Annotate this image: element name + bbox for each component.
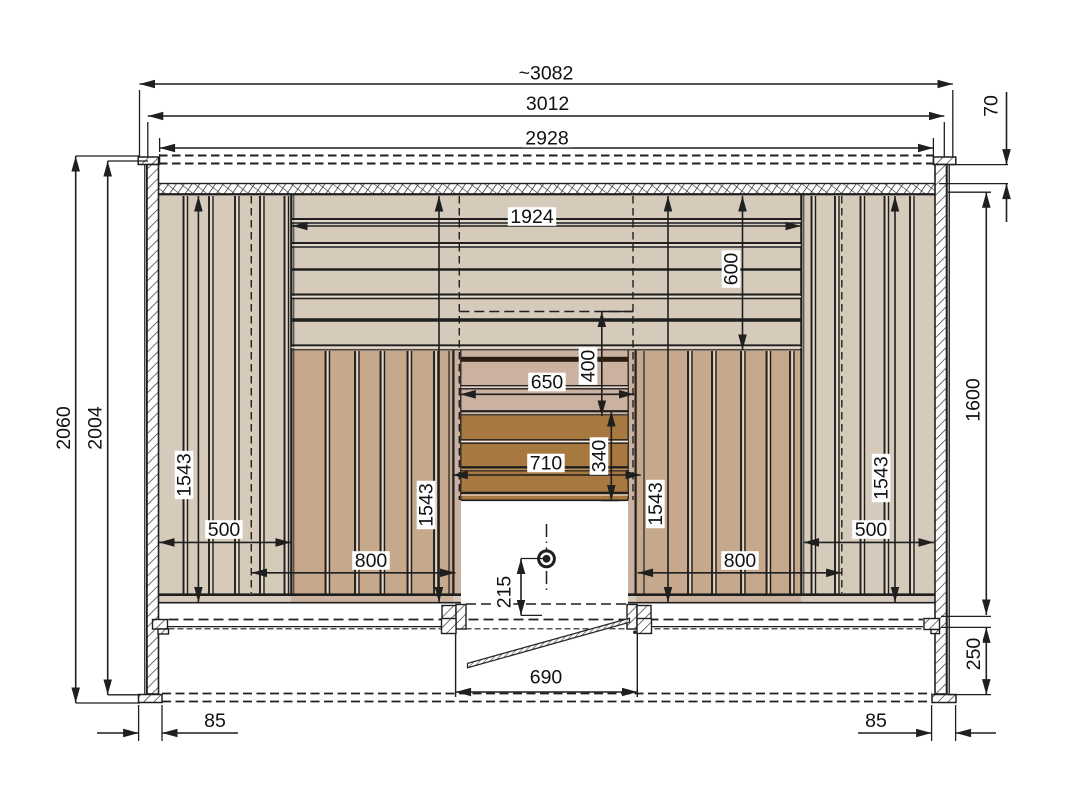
- svg-text:400: 400: [578, 350, 600, 383]
- svg-text:70: 70: [981, 95, 1003, 117]
- svg-text:1543: 1543: [871, 456, 893, 499]
- svg-text:800: 800: [355, 550, 388, 572]
- svg-text:650: 650: [531, 372, 564, 394]
- svg-text:500: 500: [855, 519, 888, 541]
- svg-text:800: 800: [724, 550, 757, 572]
- svg-text:215: 215: [494, 576, 516, 609]
- svg-text:250: 250: [963, 638, 985, 671]
- svg-text:3012: 3012: [526, 93, 569, 115]
- svg-text:710: 710: [530, 453, 563, 475]
- svg-text:340: 340: [589, 440, 611, 473]
- svg-text:500: 500: [208, 519, 241, 541]
- svg-text:85: 85: [865, 710, 887, 732]
- svg-text:1600: 1600: [963, 378, 985, 422]
- svg-text:~3082: ~3082: [519, 62, 574, 84]
- svg-text:85: 85: [204, 710, 226, 732]
- svg-text:2928: 2928: [525, 128, 568, 150]
- svg-text:2060: 2060: [53, 406, 75, 450]
- svg-text:1543: 1543: [174, 453, 196, 496]
- svg-text:690: 690: [530, 667, 563, 689]
- svg-text:1543: 1543: [645, 482, 667, 525]
- svg-text:2004: 2004: [85, 406, 107, 450]
- svg-text:1543: 1543: [416, 483, 438, 526]
- svg-text:1924: 1924: [510, 206, 554, 228]
- svg-text:600: 600: [721, 253, 743, 286]
